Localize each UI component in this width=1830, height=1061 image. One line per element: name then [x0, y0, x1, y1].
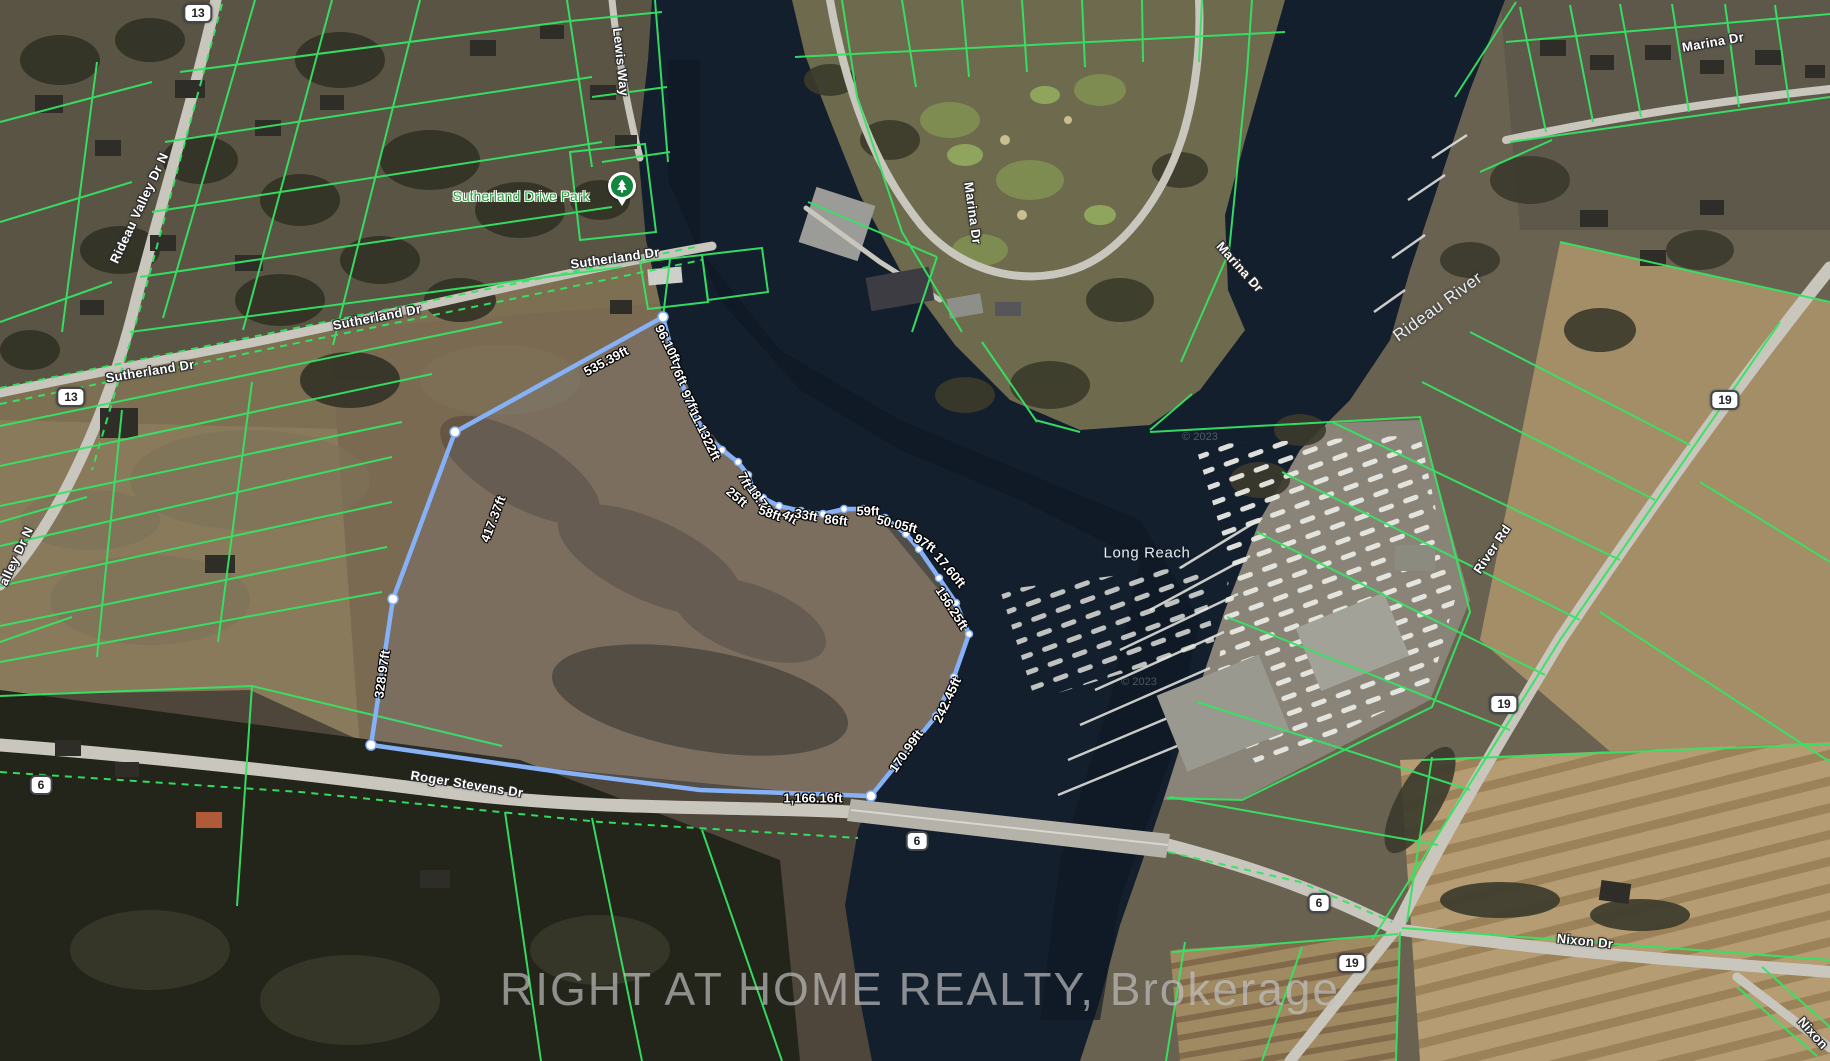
- park-pin-icon: [607, 172, 637, 210]
- brokerage-watermark: RIGHT AT HOME REALTY, Brokerage: [500, 962, 1340, 1016]
- tree-icon: [614, 178, 630, 194]
- attribution-text: © 2023: [1121, 676, 1157, 688]
- park-label: Sutherland Drive Park: [453, 188, 590, 204]
- satellite-map-canvas[interactable]: Lewis WaySutherland DrSutherland DrSuthe…: [0, 0, 1830, 1061]
- attribution-text: © 2023: [1182, 431, 1218, 443]
- map-imagery: [0, 0, 1830, 1061]
